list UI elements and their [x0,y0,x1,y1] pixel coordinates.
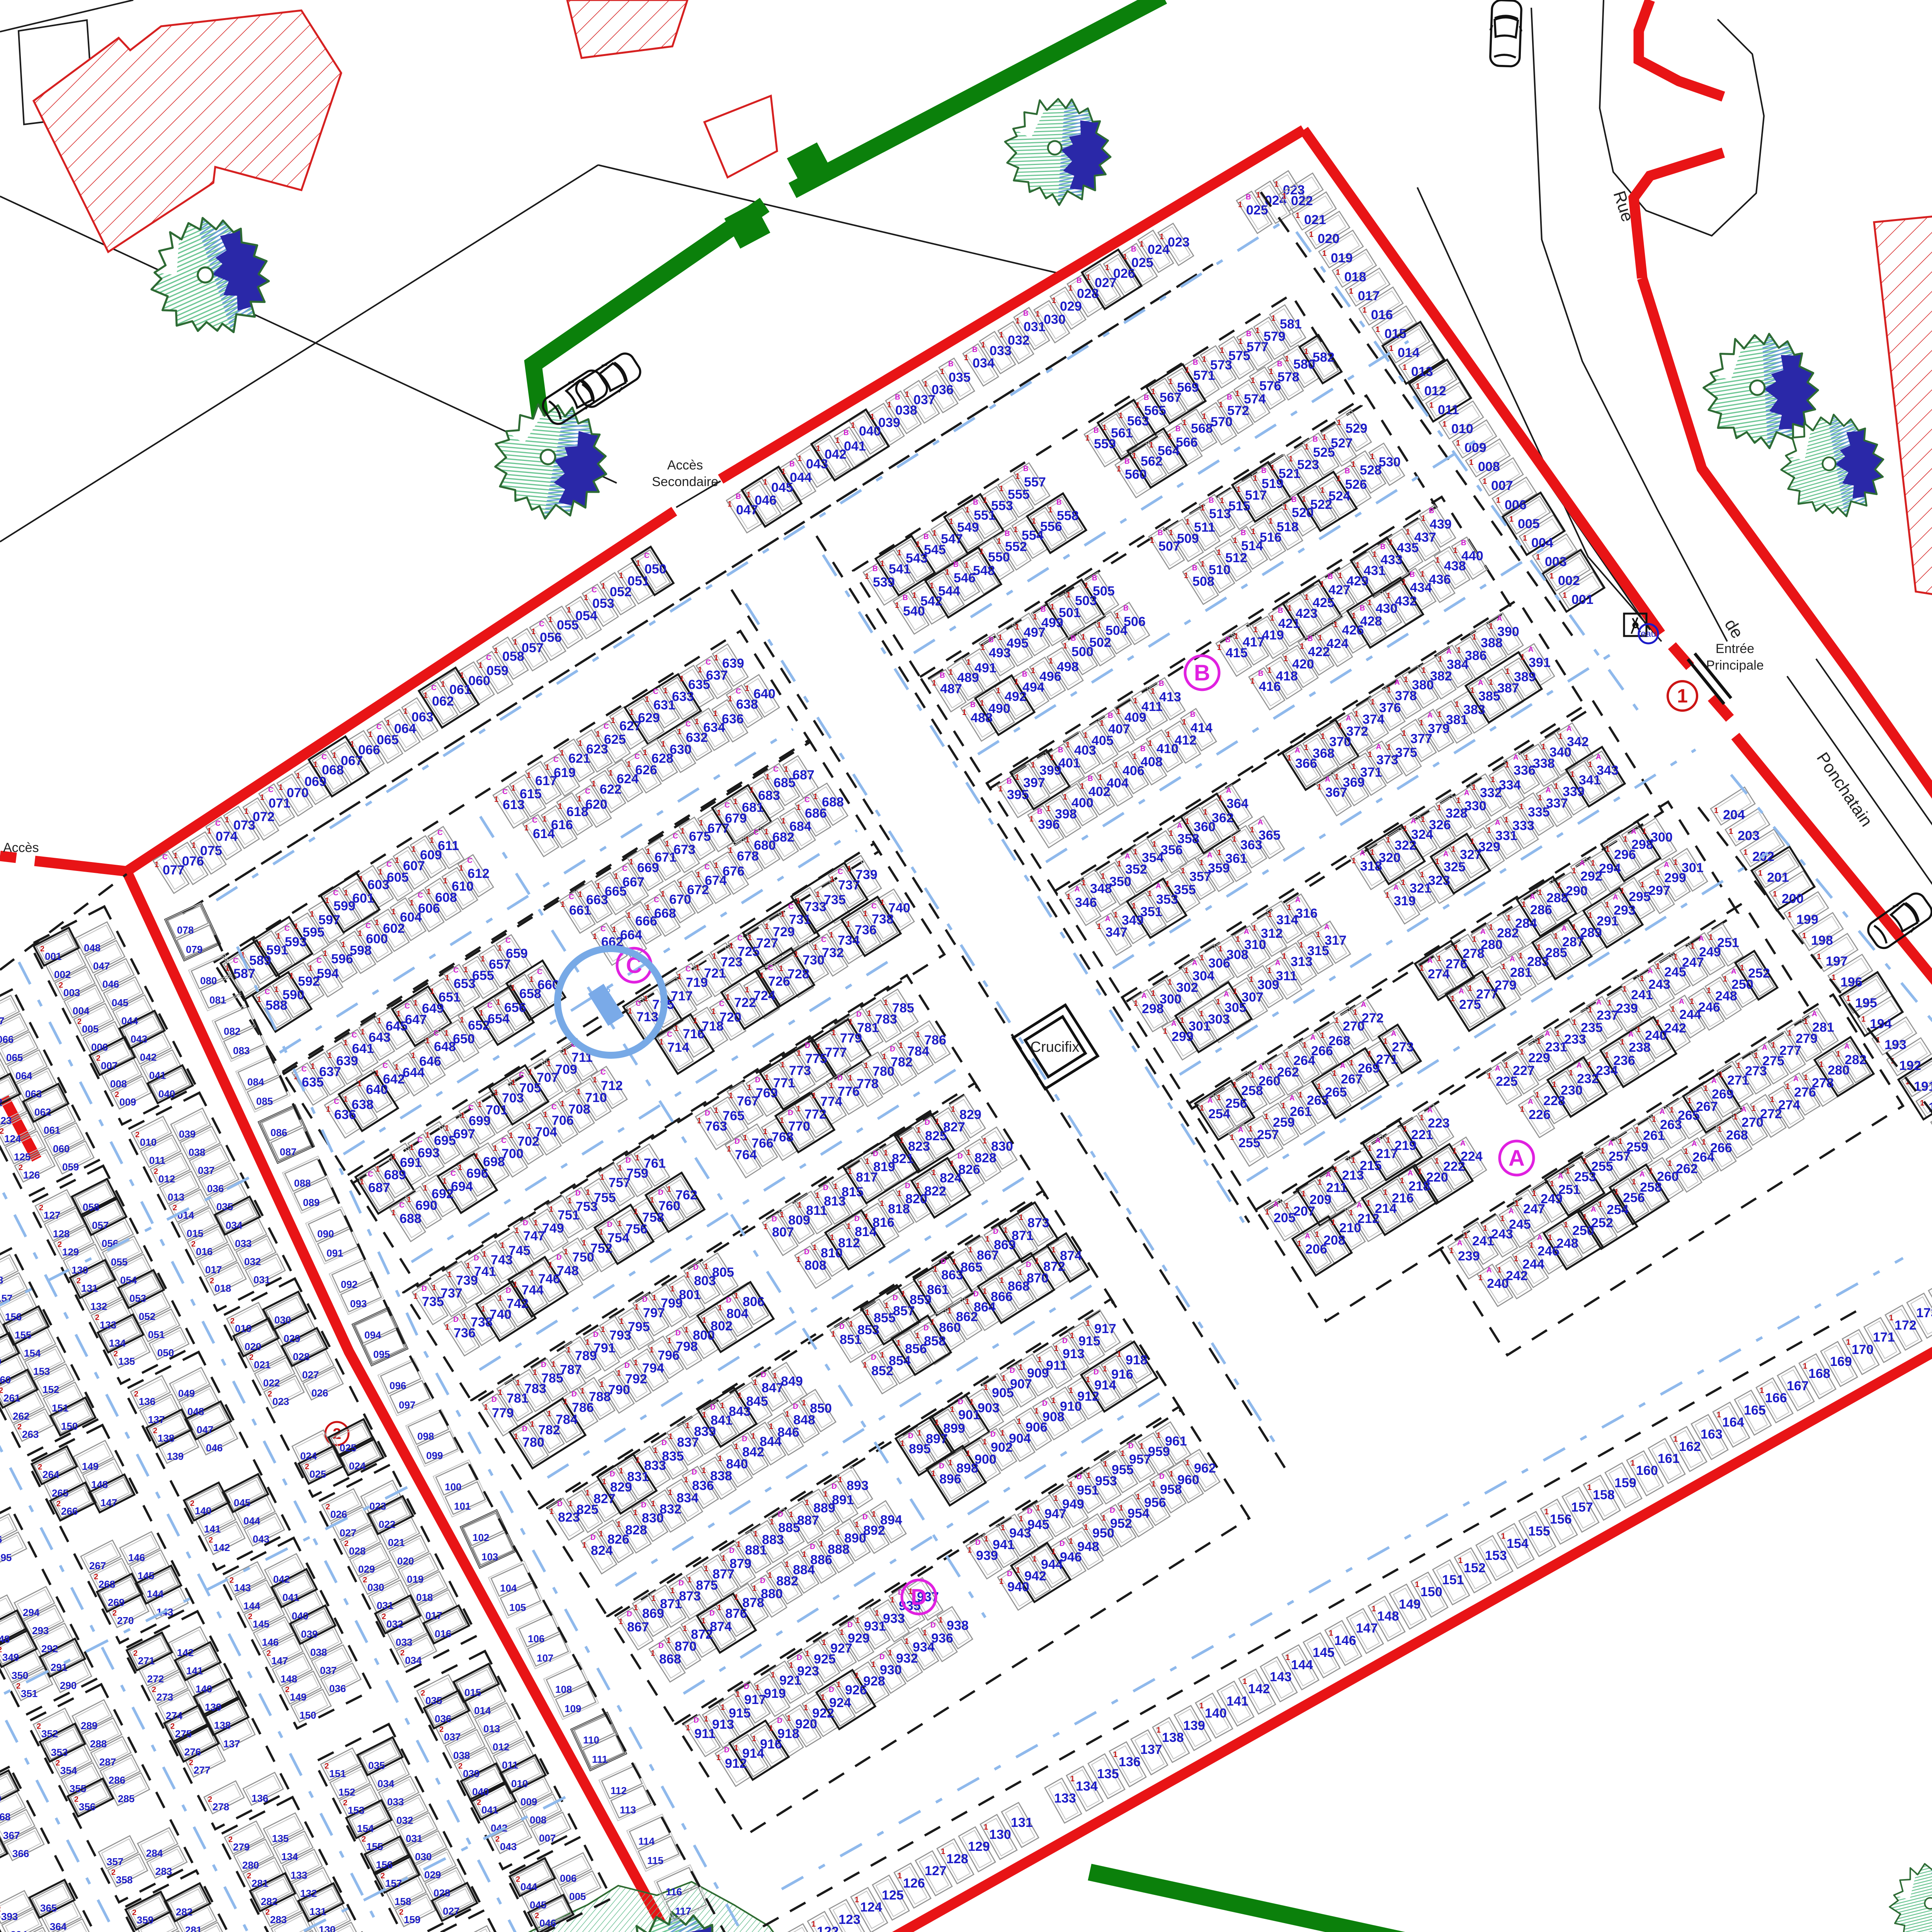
svg-text:899: 899 [943,1421,965,1436]
svg-text:1: 1 [1370,848,1374,857]
svg-text:1: 1 [1538,888,1542,897]
svg-text:D: D [797,1654,802,1662]
svg-text:156: 156 [1550,1512,1572,1527]
svg-text:1: 1 [1504,1061,1509,1070]
svg-text:A: A [1192,959,1197,967]
svg-text:149: 149 [82,1461,99,1472]
svg-text:002: 002 [54,969,71,980]
svg-text:1: 1 [984,1823,988,1832]
svg-text:038: 038 [310,1646,327,1658]
svg-text:1: 1 [871,1660,876,1669]
svg-text:949: 949 [1062,1497,1084,1512]
svg-text:023: 023 [1168,235,1190,250]
svg-text:1: 1 [1572,923,1576,932]
svg-text:1: 1 [1052,296,1056,305]
svg-text:273: 273 [156,1691,173,1703]
svg-text:1: 1 [661,740,665,748]
svg-text:1: 1 [822,1638,826,1647]
svg-text:016: 016 [196,1246,213,1257]
svg-text:1: 1 [1336,268,1340,277]
svg-text:006: 006 [560,1872,577,1884]
svg-text:1: 1 [1403,825,1407,833]
svg-text:044: 044 [243,1515,260,1527]
svg-text:1: 1 [1422,666,1426,675]
svg-text:1: 1 [1321,732,1325,741]
svg-text:430: 430 [1376,601,1398,616]
svg-text:1: 1 [628,1007,632,1015]
svg-text:565: 565 [1144,403,1166,418]
svg-text:A: A [1561,925,1567,933]
svg-text:664: 664 [620,928,642,942]
svg-text:1: 1 [1572,867,1576,875]
svg-text:196: 196 [1840,975,1862,990]
svg-text:1: 1 [1743,848,1748,857]
svg-text:394: 394 [10,1929,27,1932]
svg-text:835: 835 [662,1449,684,1464]
svg-text:1: 1 [680,675,684,683]
svg-text:1: 1 [1515,1199,1519,1208]
svg-text:1: 1 [984,1535,988,1543]
svg-text:1: 1 [884,1149,888,1157]
svg-text:D: D [523,1219,528,1227]
svg-text:1: 1 [1103,1365,1107,1373]
svg-text:1: 1 [1435,857,1439,866]
svg-text:C: C [334,1098,339,1106]
svg-text:785: 785 [892,1001,914,1015]
svg-text:1: 1 [612,925,616,934]
svg-text:D: D [724,1746,730,1754]
svg-text:1: 1 [966,658,971,667]
svg-text:A: A [1275,959,1281,967]
svg-text:673: 673 [673,842,696,857]
svg-text:1: 1 [1019,1363,1023,1372]
svg-text:1: 1 [1302,495,1306,503]
svg-text:A: A [1177,822,1182,830]
svg-text:1: 1 [443,877,447,885]
svg-text:B: B [1056,498,1062,507]
svg-text:D: D [911,1585,927,1610]
svg-text:C: C [405,1002,410,1010]
svg-text:1: 1 [880,1351,884,1359]
svg-text:1: 1 [1489,678,1493,687]
svg-text:C: C [417,1136,423,1144]
svg-text:1: 1 [496,998,500,1007]
svg-text:735: 735 [824,893,846,907]
svg-text:D: D [742,1435,747,1443]
svg-text:1: 1 [332,751,337,760]
svg-text:274: 274 [1778,1098,1800,1112]
svg-text:1: 1 [558,802,562,811]
svg-text:2: 2 [267,1649,271,1658]
svg-text:011: 011 [1438,403,1459,417]
svg-text:D: D [1042,1400,1048,1408]
svg-text:240: 240 [1645,1028,1667,1043]
svg-text:2: 2 [208,1795,212,1804]
svg-text:1: 1 [1632,1178,1636,1186]
svg-text:158: 158 [395,1896,411,1907]
svg-text:1: 1 [1754,1051,1758,1060]
svg-text:1: 1 [1083,731,1088,740]
svg-text:D: D [571,1390,577,1398]
svg-text:1: 1 [391,908,396,916]
svg-text:1: 1 [781,1061,785,1069]
svg-text:110: 110 [583,1734,599,1746]
svg-text:1: 1 [513,638,517,646]
svg-text:A: A [1639,1170,1645,1179]
svg-text:1: 1 [547,1060,551,1068]
svg-text:B: B [1023,310,1029,318]
svg-text:1: 1 [900,1439,905,1448]
svg-text:1: 1 [530,1269,534,1277]
svg-text:1: 1 [789,1661,793,1670]
svg-text:1: 1 [410,899,414,907]
svg-text:762: 762 [675,1188,697,1202]
svg-text:1: 1 [863,1361,867,1369]
svg-text:C: C [434,1029,439,1037]
svg-text:1: 1 [1097,621,1101,629]
svg-text:Entrée: Entrée [1716,641,1754,656]
svg-text:2: 2 [135,1131,139,1139]
svg-text:156: 156 [5,1311,22,1323]
svg-text:C: C [453,966,459,975]
svg-text:1: 1 [560,1100,565,1108]
svg-text:039: 039 [179,1128,196,1140]
svg-text:2: 2 [56,1500,61,1508]
svg-text:1: 1 [771,1671,775,1679]
svg-text:1: 1 [1114,911,1118,919]
svg-text:1: 1 [849,1018,853,1026]
svg-text:033: 033 [396,1636,412,1648]
svg-text:1: 1 [901,1290,905,1298]
svg-text:298: 298 [1631,837,1653,852]
svg-text:C: C [600,925,606,933]
svg-text:1: 1 [747,1083,752,1092]
svg-text:1: 1 [192,841,196,850]
svg-text:C: C [788,903,794,911]
svg-text:1: 1 [1368,750,1372,759]
svg-text:590: 590 [282,988,304,1002]
svg-text:558: 558 [1057,509,1079,523]
svg-text:311: 311 [1276,969,1297,983]
svg-text:1: 1 [745,684,749,693]
svg-text:A: A [1731,968,1736,976]
svg-text:Accès: Accès [3,840,39,855]
svg-text:A: A [1427,957,1433,965]
svg-text:1: 1 [155,861,159,869]
svg-text:1: 1 [1274,180,1279,189]
svg-text:1: 1 [545,763,549,772]
svg-text:D: D [1110,1507,1115,1515]
svg-text:745: 745 [509,1243,531,1258]
svg-text:1: 1 [1537,943,1541,952]
svg-text:1: 1 [257,995,261,1004]
svg-text:2: 2 [326,1503,330,1511]
svg-text:1: 1 [498,1294,502,1303]
svg-text:1: 1 [412,845,416,854]
svg-text:152: 152 [1464,1561,1486,1575]
svg-text:1: 1 [984,1383,988,1392]
svg-text:B: B [1261,467,1267,475]
svg-text:052: 052 [139,1311,155,1322]
svg-text:616: 616 [551,818,573,832]
svg-text:D: D [422,1285,427,1293]
svg-text:D: D [973,1290,979,1298]
svg-text:1: 1 [951,1105,955,1114]
svg-text:1: 1 [1529,1241,1534,1250]
svg-text:1: 1 [717,809,721,817]
svg-text:A: A [1326,1171,1331,1179]
svg-text:1: 1 [599,1228,603,1236]
svg-text:765: 765 [723,1109,745,1123]
svg-text:1: 1 [677,973,682,981]
svg-text:1: 1 [1115,612,1119,620]
svg-text:1: 1 [1102,1514,1106,1522]
svg-text:1: 1 [1199,1010,1204,1018]
svg-text:B: B [1144,394,1149,402]
svg-text:200: 200 [1782,891,1804,906]
svg-text:539: 539 [873,575,895,590]
svg-text:B: B [1123,604,1129,612]
svg-text:D: D [1007,1570,1012,1578]
svg-text:1: 1 [1066,893,1071,901]
svg-text:1: 1 [1117,465,1121,473]
svg-text:146: 146 [128,1552,145,1563]
svg-text:043: 043 [500,1841,517,1852]
svg-text:1: 1 [1451,845,1456,854]
svg-text:132: 132 [300,1888,317,1899]
svg-text:1: 1 [677,728,682,736]
svg-text:A: A [1660,1108,1665,1116]
svg-text:1: 1 [1605,1051,1609,1060]
svg-text:C: C [600,1068,606,1077]
svg-text:1: 1 [646,847,650,856]
svg-text:2: 2 [439,1725,444,1734]
svg-text:1: 1 [1296,211,1300,220]
svg-text:1: 1 [1607,999,1612,1007]
svg-text:A: A [1711,1077,1717,1085]
svg-text:1: 1 [880,898,884,907]
svg-text:1: 1 [1230,1133,1234,1142]
svg-text:151: 151 [52,1402,68,1414]
svg-text:B: B [1308,635,1313,643]
svg-text:032: 032 [244,1256,261,1267]
svg-text:1: 1 [1032,517,1036,526]
svg-text:513: 513 [1209,507,1231,521]
svg-text:1: 1 [1081,633,1085,641]
svg-text:A: A [1480,928,1486,936]
svg-text:082: 082 [224,1026,240,1037]
svg-text:1: 1 [1400,1177,1404,1185]
svg-text:035: 035 [949,370,971,385]
svg-text:2: 2 [228,1835,233,1844]
svg-text:1: 1 [1505,667,1510,676]
svg-text:154: 154 [1507,1536,1529,1551]
svg-text:688: 688 [400,1211,422,1226]
svg-text:C: C [773,765,779,774]
svg-text:083: 083 [233,1045,250,1056]
svg-text:1: 1 [531,628,536,636]
svg-text:138: 138 [158,1432,174,1444]
svg-text:D: D [957,1152,963,1160]
svg-text:012: 012 [158,1173,175,1185]
svg-text:1: 1 [527,771,531,780]
svg-text:1: 1 [1817,952,1821,961]
svg-text:275: 275 [175,1728,192,1740]
svg-text:1: 1 [1496,496,1500,505]
svg-text:667: 667 [622,875,645,889]
svg-text:025: 025 [310,1468,326,1480]
svg-text:C: C [553,756,559,764]
svg-text:134: 134 [281,1851,298,1862]
svg-text:1: 1 [1232,835,1236,844]
svg-text:B: B [1313,435,1318,444]
svg-text:012: 012 [1424,384,1446,398]
svg-text:1: 1 [1572,1018,1577,1027]
svg-text:1: 1 [1355,561,1360,570]
svg-text:1: 1 [1668,1159,1672,1168]
svg-text:2: 2 [96,1054,100,1063]
svg-text:1: 1 [543,1111,548,1119]
svg-text:266: 266 [61,1505,78,1517]
svg-text:1: 1 [896,1339,901,1347]
svg-text:1: 1 [1709,933,1713,942]
svg-text:137: 137 [1140,1742,1162,1757]
svg-text:008: 008 [530,1814,546,1826]
svg-text:1: 1 [1184,966,1189,975]
svg-text:1: 1 [1353,1008,1357,1017]
svg-text:252: 252 [1591,1216,1613,1230]
svg-text:009: 009 [119,1096,136,1108]
svg-text:1: 1 [644,995,648,1003]
svg-text:195: 195 [1855,996,1877,1010]
svg-text:1: 1 [935,1418,939,1427]
svg-text:1: 1 [651,1594,656,1603]
svg-text:283: 283 [270,1914,287,1925]
svg-text:D: D [941,1258,946,1266]
svg-text:035: 035 [368,1760,385,1771]
svg-text:D: D [627,1610,632,1618]
svg-text:2: 2 [0,1386,3,1395]
svg-text:1: 1 [1717,1411,1721,1419]
svg-text:1: 1 [1404,675,1408,684]
svg-text:722: 722 [734,995,756,1010]
svg-text:439: 439 [1430,517,1452,532]
svg-text:1: 1 [584,594,588,602]
svg-text:1: 1 [716,1753,721,1762]
svg-text:1: 1 [1283,503,1287,512]
svg-text:347: 347 [0,1615,0,1627]
svg-text:1: 1 [855,1672,859,1680]
svg-text:203: 203 [1738,828,1760,843]
svg-text:1: 1 [1333,621,1338,629]
svg-text:2: 2 [77,1277,81,1285]
svg-text:316: 316 [1296,906,1318,921]
svg-text:1: 1 [1121,1449,1125,1458]
svg-text:1: 1 [548,616,553,624]
svg-text:1: 1 [1566,1167,1570,1175]
svg-text:1: 1 [1570,770,1575,779]
svg-text:1: 1 [1298,1091,1303,1099]
svg-text:1: 1 [244,807,248,816]
svg-text:C: C [418,891,423,900]
svg-text:1: 1 [294,922,298,931]
svg-text:1: 1 [1507,914,1511,922]
svg-text:C: C [634,753,640,761]
svg-text:1: 1 [1385,891,1389,900]
svg-text:167: 167 [1787,1379,1809,1393]
svg-text:356: 356 [79,1801,95,1813]
svg-text:849: 849 [781,1374,803,1389]
svg-text:1: 1 [1690,997,1694,1006]
svg-text:063: 063 [412,710,434,724]
svg-text:348: 348 [1090,881,1112,896]
svg-text:101: 101 [454,1500,471,1512]
svg-text:123: 123 [838,1912,861,1927]
svg-text:B: B [1258,670,1264,678]
svg-text:1: 1 [1035,1257,1039,1265]
svg-text:1: 1 [1185,366,1189,374]
svg-text:1: 1 [765,1073,769,1082]
svg-text:2: 2 [399,1908,403,1917]
svg-text:153: 153 [348,1804,364,1816]
svg-text:C: C [451,1170,456,1178]
svg-text:B: B [973,498,978,507]
svg-text:A: A [1075,885,1080,893]
svg-text:336: 336 [1514,763,1536,778]
svg-text:136: 136 [252,1793,268,1804]
svg-text:A: A [1692,1140,1697,1148]
svg-text:1: 1 [1250,826,1254,834]
svg-text:014: 014 [1398,345,1420,360]
svg-text:1: 1 [704,1262,708,1271]
svg-text:1: 1 [1132,452,1136,460]
svg-text:198: 198 [1811,933,1833,948]
svg-text:1: 1 [1105,264,1109,272]
svg-text:639: 639 [722,656,744,671]
svg-text:1: 1 [864,1061,868,1070]
svg-text:1: 1 [1203,808,1207,816]
svg-text:028: 028 [293,1351,310,1362]
svg-text:A: A [1258,1064,1264,1072]
svg-text:1: 1 [949,668,953,677]
svg-text:151: 151 [329,1768,346,1779]
svg-text:B: B [1225,636,1231,644]
svg-text:1: 1 [1169,1470,1173,1478]
svg-text:794: 794 [642,1361,664,1376]
svg-text:1: 1 [423,1184,427,1192]
svg-text:1: 1 [1148,739,1152,748]
svg-text:1: 1 [1151,1480,1156,1488]
svg-text:1: 1 [717,1604,721,1612]
svg-text:365: 365 [40,1902,57,1914]
svg-text:1: 1 [964,354,968,362]
svg-text:1: 1 [296,772,300,780]
svg-text:1: 1 [1770,1095,1774,1104]
svg-text:021: 021 [1304,213,1326,227]
svg-text:1: 1 [923,1629,927,1637]
svg-text:051: 051 [148,1329,165,1340]
svg-text:1: 1 [1673,858,1678,867]
svg-text:A: A [1325,776,1330,784]
svg-text:1: 1 [983,1438,987,1446]
svg-text:A: A [1596,753,1601,761]
svg-text:1: 1 [1554,932,1558,940]
svg-text:133: 133 [1054,1791,1076,1806]
svg-text:C: C [654,896,659,904]
svg-text:1: 1 [1152,840,1156,849]
svg-text:1: 1 [888,1649,892,1657]
svg-text:A: A [1510,955,1515,963]
